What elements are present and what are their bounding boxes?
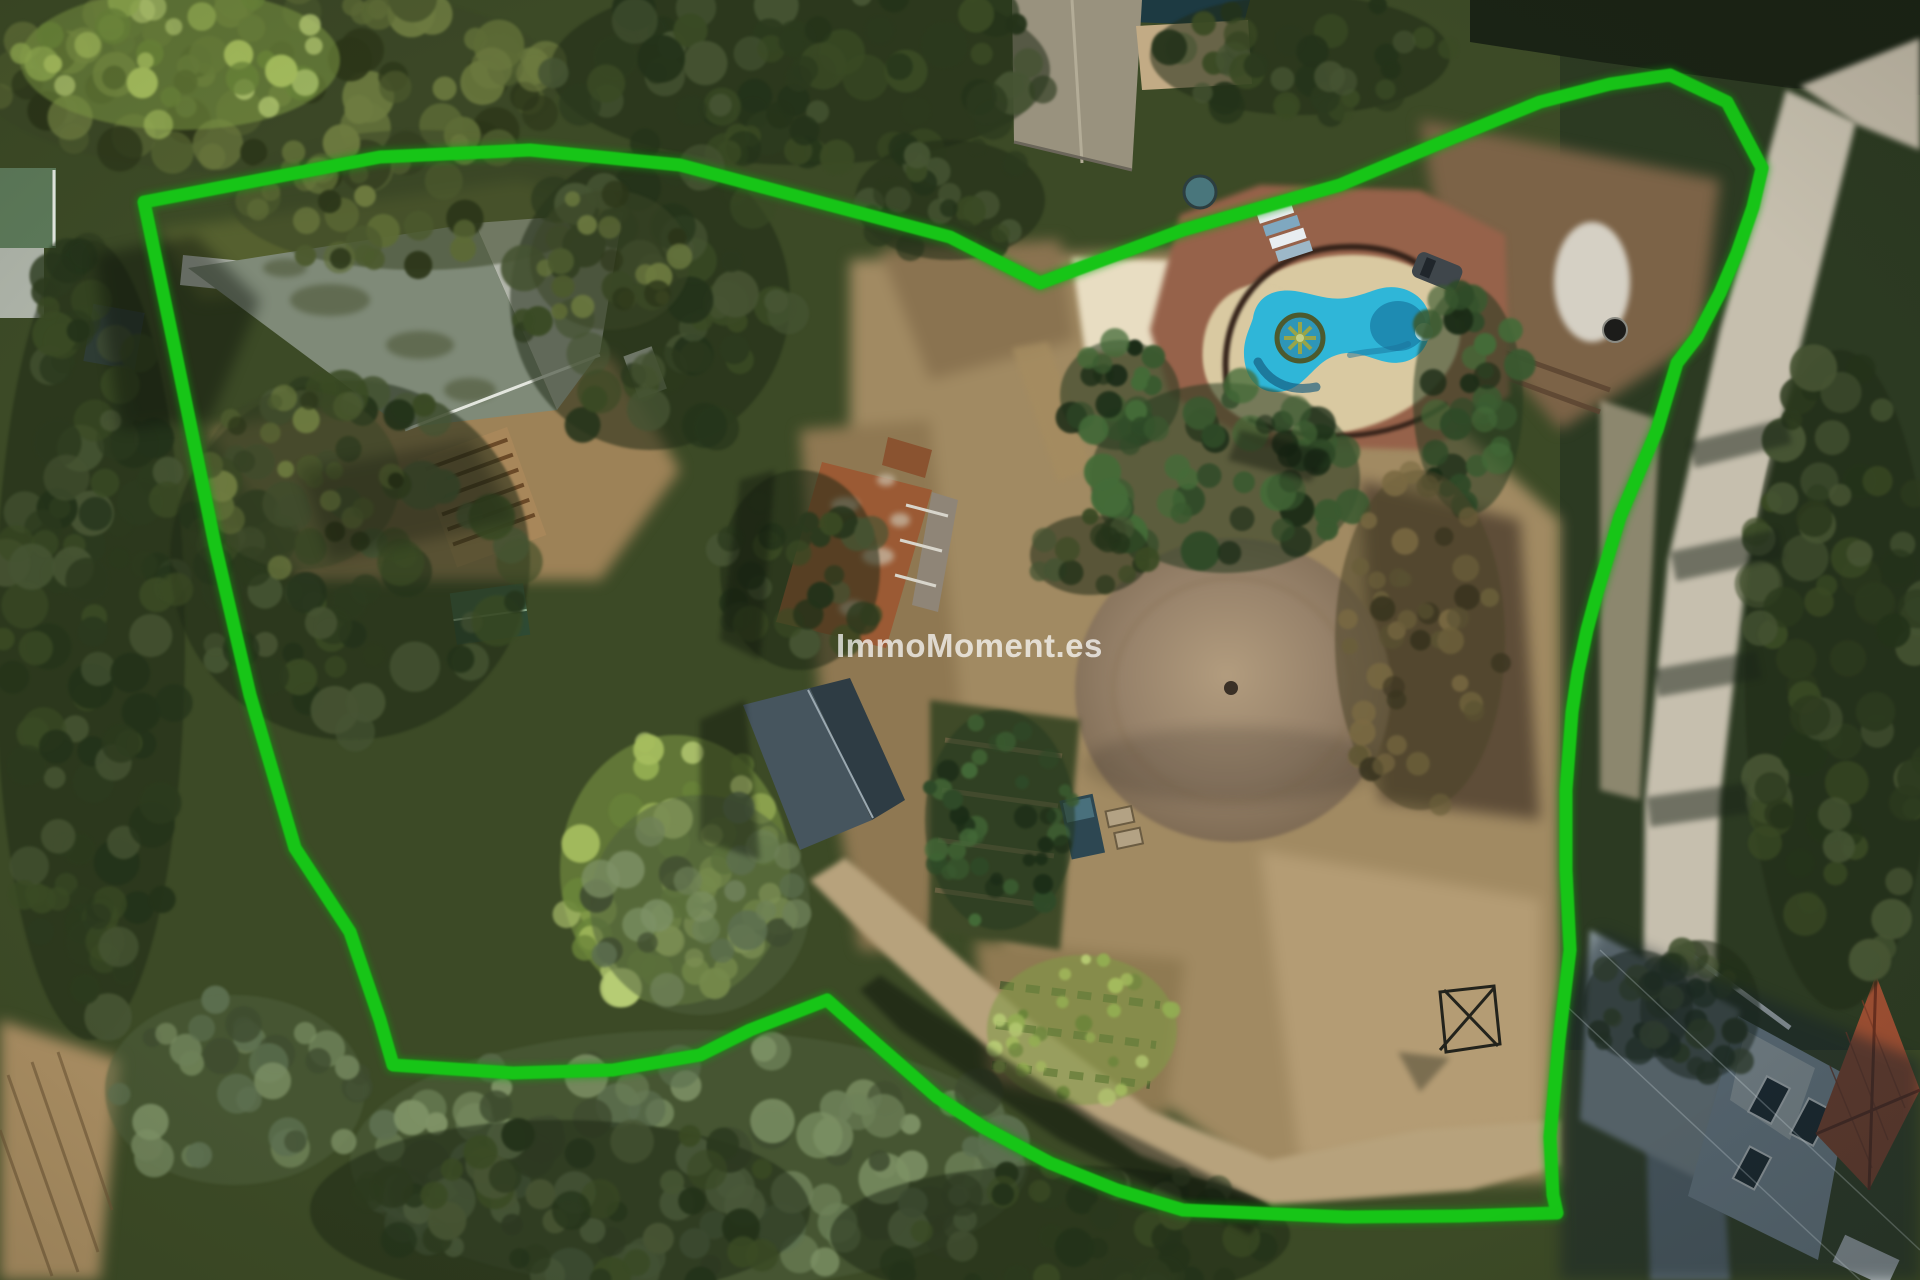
- aerial-photo-canvas: ImmoMoment.es: [0, 0, 1920, 1280]
- aerial-photo: ImmoMoment.es: [0, 0, 1920, 1280]
- watermark-text: ImmoMoment.es: [836, 627, 1103, 664]
